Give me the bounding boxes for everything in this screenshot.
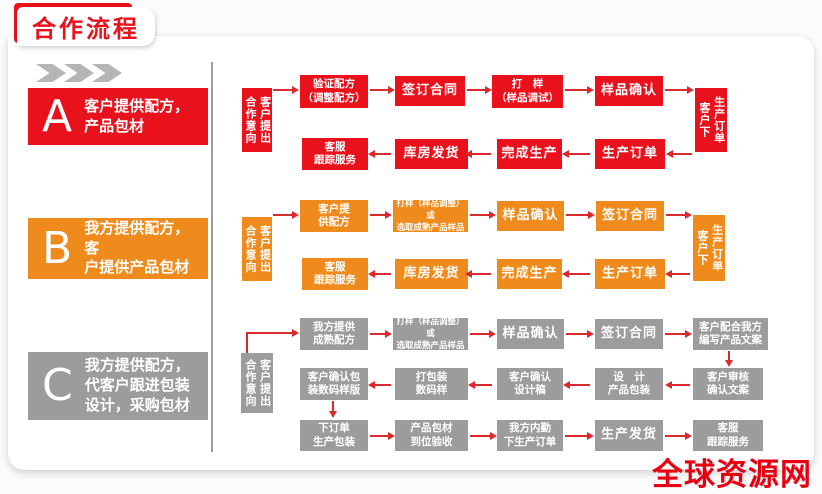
watermark: 全球资源网 bbox=[652, 449, 812, 494]
flow-step: 打 样 （样品调试） bbox=[492, 75, 563, 108]
flow-arrow bbox=[273, 89, 293, 91]
flow-step: 客户提 供配方 bbox=[300, 200, 368, 232]
flow-arrow bbox=[565, 89, 588, 91]
section-b-desc: 我方提供配方，客 户提供产品包材 bbox=[84, 219, 200, 278]
flow-step: 签订合同 bbox=[395, 76, 465, 106]
flow-arrow bbox=[374, 384, 391, 386]
flow-arrow-down bbox=[332, 401, 334, 412]
order-box-b: 客户下 生产订单 bbox=[693, 215, 725, 281]
flow-step: 我方提供 成熟配方 bbox=[300, 318, 368, 350]
flow-arrow bbox=[470, 214, 490, 216]
flow-arrow bbox=[666, 214, 686, 216]
flow-step: 下订单 生产包装 bbox=[300, 420, 368, 451]
flow-arrow bbox=[370, 89, 389, 91]
intent-box-c: 合作意向 客户提出 bbox=[241, 353, 273, 413]
flow-arrow bbox=[374, 153, 391, 155]
intent-right-text: 客户提出 bbox=[258, 225, 271, 273]
flow-arrow bbox=[569, 384, 590, 386]
flow-arrow bbox=[665, 435, 686, 437]
order-left-text: 客户下 bbox=[697, 102, 710, 138]
flow-step: 我方内勤 下生产订单 bbox=[497, 420, 563, 451]
flow-arrow bbox=[566, 333, 588, 335]
flow-step: 客户审核 确认文案 bbox=[693, 368, 763, 400]
page-title: 合作流程 bbox=[32, 9, 140, 44]
flow-arrow bbox=[370, 214, 386, 216]
flow-step: 验证配方 （调整配方） bbox=[300, 75, 368, 108]
flow-arrow bbox=[374, 273, 391, 275]
intent-box-b: 合作意向 客户提出 bbox=[242, 217, 272, 281]
intent-right-text: 客户提出 bbox=[258, 359, 271, 407]
flow-step: 生产订单 bbox=[595, 139, 665, 169]
flow-step: 客服 跟踪服务 bbox=[693, 420, 763, 451]
flow-arrow bbox=[565, 435, 588, 437]
flow-step: 样品确认 bbox=[497, 319, 564, 349]
section-c-block: C 我方提供配方， 代客户跟进包装 设计，采购包材 bbox=[28, 352, 208, 420]
order-right-text: 生产订单 bbox=[712, 96, 725, 144]
flow-arrow bbox=[370, 435, 389, 437]
flow-step: 产品包材 到位验收 bbox=[395, 420, 468, 451]
flow-step: 签订合同 bbox=[596, 201, 664, 231]
flow-step: 打包装 数码样 bbox=[395, 368, 468, 400]
section-divider-line bbox=[211, 62, 213, 452]
flow-step: 设 计 产品包装 bbox=[595, 368, 663, 400]
flow-step: 生产发货 bbox=[595, 420, 663, 451]
title-tab: 合作流程 bbox=[17, 7, 155, 46]
flow-arrow bbox=[370, 333, 386, 335]
flow-arrow bbox=[568, 273, 590, 275]
flow-arrow bbox=[471, 273, 491, 275]
flow-step: 打样（样品调整）或 选取成熟产品样品 bbox=[393, 318, 468, 350]
flow-step: 库房发货 bbox=[395, 259, 468, 289]
intent-left-text: 合作意向 bbox=[243, 96, 256, 144]
intent-left-text: 合作意向 bbox=[243, 359, 256, 407]
flow-arrow bbox=[246, 332, 293, 334]
flow-step: 打样（样品调整）或 选取成熟产品样品 bbox=[393, 200, 468, 232]
flow-step: 客户确认包 装数码样版 bbox=[300, 368, 368, 400]
intent-left-text: 合作意向 bbox=[243, 225, 256, 273]
flow-arrow bbox=[471, 153, 491, 155]
flow-arrow bbox=[470, 435, 491, 437]
flow-step: 客服 跟踪服务 bbox=[302, 138, 368, 170]
flow-step: 客户配合我方 编写产品文案 bbox=[693, 318, 768, 350]
flow-arrow bbox=[672, 153, 692, 155]
flow-arrow bbox=[665, 89, 688, 91]
order-left-text: 客户下 bbox=[695, 230, 708, 266]
flow-step: 客服 跟踪服务 bbox=[302, 258, 368, 290]
flow-arrow bbox=[671, 273, 690, 275]
flow-arrow bbox=[467, 89, 486, 91]
intent-box-a: 合作意向 客户提出 bbox=[242, 88, 272, 152]
section-a-letter: A bbox=[42, 95, 72, 139]
intent-right-text: 客户提出 bbox=[258, 96, 271, 144]
flow-arrow bbox=[474, 384, 492, 386]
section-a-desc: 客户提供配方， 产品包材 bbox=[84, 97, 189, 137]
flow-line bbox=[246, 333, 248, 353]
flow-arrow-down bbox=[728, 351, 730, 361]
flow-arrow bbox=[665, 333, 686, 335]
flow-arrow bbox=[671, 384, 690, 386]
flow-step: 生产订单 bbox=[595, 259, 665, 289]
flow-arrow bbox=[470, 333, 490, 335]
section-c-desc: 我方提供配方， 代客户跟进包装 设计，采购包材 bbox=[85, 356, 190, 415]
order-right-text: 生产订单 bbox=[710, 224, 723, 272]
flow-step: 样品确认 bbox=[497, 201, 564, 231]
flow-arrow bbox=[273, 214, 293, 216]
flow-arrow bbox=[568, 153, 590, 155]
flow-step: 客户确认 设计稿 bbox=[497, 368, 563, 400]
flow-arrow bbox=[566, 214, 589, 216]
flow-step: 库房发货 bbox=[395, 139, 468, 169]
flow-step: 样品确认 bbox=[595, 76, 663, 106]
section-b-letter: B bbox=[42, 227, 72, 271]
section-b-block: B 我方提供配方，客 户提供产品包材 bbox=[28, 218, 208, 279]
flow-step: 完成生产 bbox=[497, 259, 562, 289]
section-c-letter: C bbox=[42, 364, 73, 408]
flow-step: 签订合同 bbox=[595, 319, 663, 349]
flow-step: 完成生产 bbox=[497, 139, 562, 169]
order-box-a: 客户下 生产订单 bbox=[695, 88, 727, 152]
section-a-block: A 客户提供配方， 产品包材 bbox=[28, 88, 208, 145]
